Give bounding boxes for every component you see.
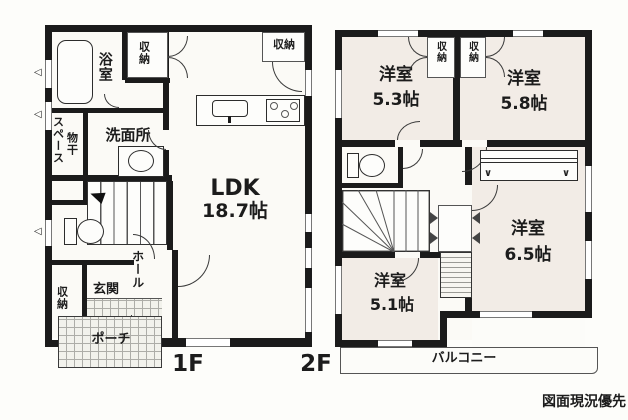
f2-balcony-label: バルコニー bbox=[420, 352, 508, 366]
f2-wall-toilet-bottom bbox=[342, 183, 403, 188]
f2-wall-top bbox=[335, 30, 592, 37]
f2-floor-label: 2F bbox=[296, 352, 336, 376]
f1-window-toilet bbox=[45, 220, 52, 246]
f2-wall-under-rooms-2 bbox=[420, 140, 462, 147]
f2-window-top-room53 bbox=[378, 30, 418, 37]
f2-room51-size: 5.1帖 bbox=[354, 297, 430, 314]
vent-marker-icon: ◁ bbox=[34, 227, 42, 237]
f2-wall-hall-room65-lower bbox=[465, 296, 472, 311]
f2-shelf-cabinet bbox=[440, 252, 472, 298]
f2-toilet-bowl bbox=[359, 154, 385, 177]
f1-washbasin-bowl bbox=[128, 150, 154, 172]
f1-ldk-size: 18.7帖 bbox=[195, 202, 275, 222]
f1-entrance-label: 玄関 bbox=[85, 283, 127, 297]
f1-wall-stairs-right bbox=[167, 181, 173, 250]
f1-kitchen-faucet-icon bbox=[228, 116, 231, 123]
f1-bathtub bbox=[57, 40, 93, 104]
f1-floor-label: 1F bbox=[168, 352, 208, 376]
hanger-pipe-icon: ∨ bbox=[562, 169, 570, 179]
f1-bath-closet-label: 収納 bbox=[138, 41, 150, 65]
f1-wall-bottom bbox=[160, 338, 312, 347]
f2-bifold-door-icon bbox=[472, 232, 480, 244]
f2-window-left-room51 bbox=[335, 266, 342, 314]
f1-window-bath bbox=[45, 60, 52, 88]
f1-window-drying bbox=[45, 102, 52, 130]
f1-stove-burner bbox=[290, 102, 298, 110]
f1-drying-space-label-left: スペース bbox=[52, 116, 64, 164]
f2-window-balcony-door-room51 bbox=[378, 340, 412, 347]
f2-stairs bbox=[342, 190, 430, 252]
f2-room53-size: 5.3帖 bbox=[360, 92, 432, 110]
f2-room58-name: 洋室 bbox=[492, 71, 556, 89]
f2-hall-closet-box bbox=[438, 205, 472, 252]
f2-window-right-room65 bbox=[585, 241, 592, 279]
f1-stove-burner bbox=[270, 102, 278, 110]
f2-closet-a-label: 収納 bbox=[434, 41, 445, 63]
floorplan-canvas: ◁ ◁ ◁ 浴室 収納 洗面所 物干 スペース ホール 玄関 収納 LDK 18… bbox=[0, 0, 628, 420]
vent-marker-icon: ◁ bbox=[34, 110, 42, 120]
f1-wall-toilet-bottom bbox=[52, 260, 134, 265]
f2-closet-b-label: 収納 bbox=[466, 41, 477, 63]
f2-wall-room51-top-1 bbox=[335, 252, 395, 258]
f2-window-right-room58 bbox=[585, 166, 592, 212]
f1-window-ldk-sliding-sash bbox=[305, 232, 312, 248]
f2-balcony-upper bbox=[472, 318, 585, 347]
f2-room65-name: 洋室 bbox=[496, 221, 560, 239]
f2-wall-under-rooms-3 bbox=[487, 140, 592, 147]
drawing-note: 図面現況優先 bbox=[500, 395, 626, 410]
f1-stove-burner bbox=[281, 110, 289, 118]
f2-window-balcony-door-room65 bbox=[480, 311, 532, 318]
f2-bifold-door-icon bbox=[430, 212, 438, 224]
f1-toilet-bowl bbox=[77, 219, 104, 244]
f2-room58-size: 5.8帖 bbox=[488, 96, 560, 114]
f2-window-left-room53 bbox=[335, 70, 342, 118]
f2-wall-step-connector bbox=[440, 311, 447, 347]
f1-kitchen-sink bbox=[212, 100, 248, 117]
f2-room65-size: 6.5帖 bbox=[492, 247, 564, 265]
f1-ldk-closet-label: 収納 bbox=[264, 39, 304, 51]
f1-porch-label: ポーチ bbox=[88, 333, 134, 347]
f1-wall-top bbox=[45, 25, 312, 32]
f2-room51-name: 洋室 bbox=[358, 273, 422, 290]
f2-wall-under-rooms-1 bbox=[335, 140, 395, 147]
f1-drying-space-label-right: 物干 bbox=[66, 132, 78, 156]
f1-window-ldk-upper bbox=[305, 70, 312, 96]
hanger-pipe-icon: ∨ bbox=[484, 169, 492, 179]
f1-wall-bath-bottom bbox=[52, 108, 168, 113]
f1-toilet-tank bbox=[64, 218, 77, 245]
f2-toilet-tank bbox=[347, 153, 359, 178]
f2-window-top-room58 bbox=[513, 30, 543, 37]
f1-hall-label: ホール bbox=[131, 250, 144, 289]
f1-ldk-name: LDK bbox=[203, 177, 267, 200]
f1-bath-label: 浴室 bbox=[97, 52, 112, 82]
f1-entrance-closet-label: 収納 bbox=[56, 286, 68, 310]
f1-window-ldk-lower bbox=[305, 288, 312, 332]
f1-entrance-tile bbox=[87, 298, 162, 316]
f2-bifold-door-icon bbox=[472, 212, 480, 224]
vent-marker-icon: ◁ bbox=[34, 68, 42, 78]
f2-bifold-door-icon bbox=[430, 232, 438, 244]
f1-window-garden-door bbox=[186, 338, 230, 347]
